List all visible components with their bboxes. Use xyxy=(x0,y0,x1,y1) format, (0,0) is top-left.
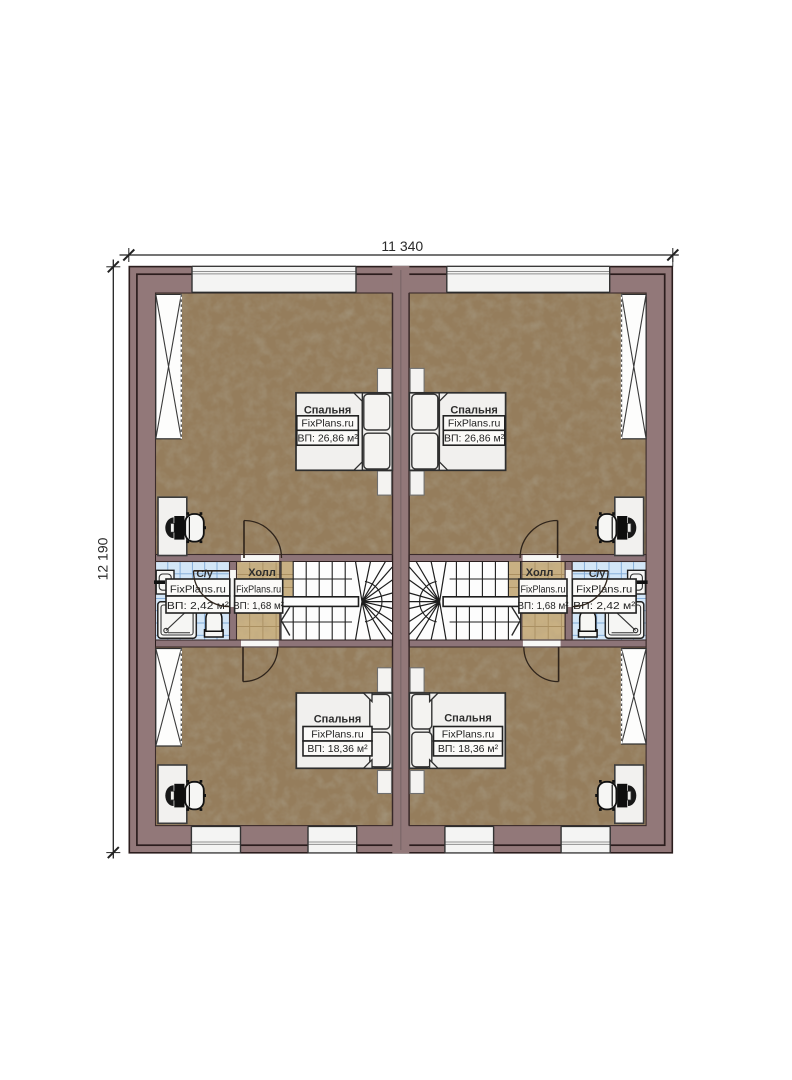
svg-text:Холл: Холл xyxy=(248,567,276,579)
svg-text:ВП: 2,42 м²: ВП: 2,42 м² xyxy=(573,601,636,612)
svg-text:ВП: 26,86 м²: ВП: 26,86 м² xyxy=(297,432,358,444)
svg-text:Спальня: Спальня xyxy=(444,713,492,725)
svg-text:FixPlans.ru: FixPlans.ru xyxy=(170,584,226,595)
svg-text:11 340: 11 340 xyxy=(381,238,423,254)
svg-text:ВП: 2,42 м²: ВП: 2,42 м² xyxy=(167,601,230,612)
svg-text:Спальня: Спальня xyxy=(450,404,498,416)
svg-text:FixPlans.ru: FixPlans.ru xyxy=(301,418,354,430)
svg-text:С/у: С/у xyxy=(589,568,606,580)
svg-text:Спальня: Спальня xyxy=(304,404,352,416)
svg-text:ВП: 18,36 м²: ВП: 18,36 м² xyxy=(438,743,499,755)
svg-text:FixPlans.ru: FixPlans.ru xyxy=(311,728,364,740)
svg-text:FixPlans.ru: FixPlans.ru xyxy=(521,584,566,595)
svg-text:FixPlans.ru: FixPlans.ru xyxy=(236,584,281,595)
svg-text:Холл: Холл xyxy=(526,567,554,579)
svg-text:12 190: 12 190 xyxy=(95,537,111,580)
svg-text:FixPlans.ru: FixPlans.ru xyxy=(442,728,495,740)
svg-text:Спальня: Спальня xyxy=(314,714,362,726)
svg-text:ВП: 1,68 м²: ВП: 1,68 м² xyxy=(518,601,570,612)
svg-text:С/у: С/у xyxy=(196,568,213,580)
svg-text:ВП: 1,68 м²: ВП: 1,68 м² xyxy=(233,601,285,612)
svg-text:ВП: 18,36 м²: ВП: 18,36 м² xyxy=(307,743,368,755)
svg-text:FixPlans.ru: FixPlans.ru xyxy=(448,418,501,430)
svg-text:ВП: 26,86 м²: ВП: 26,86 м² xyxy=(444,432,505,444)
